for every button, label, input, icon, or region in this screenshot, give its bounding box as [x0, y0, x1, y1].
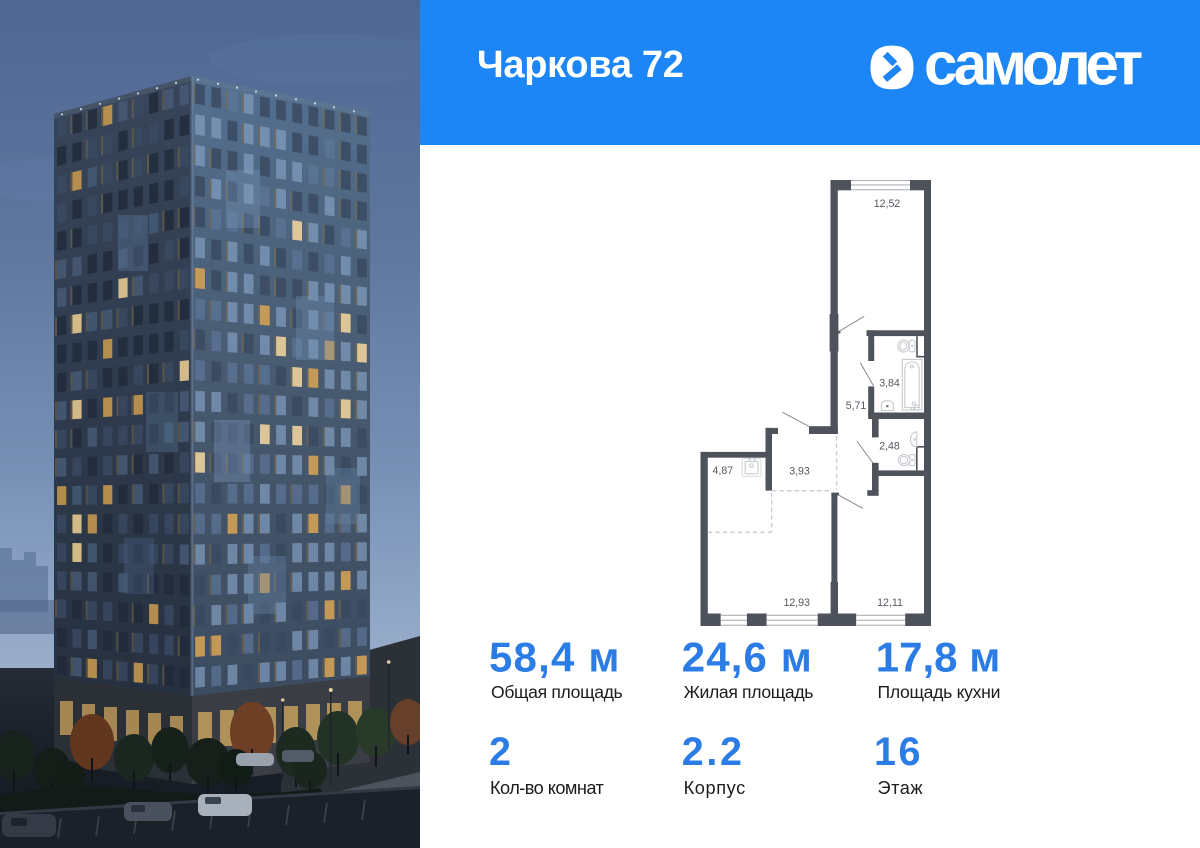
svg-text:58,4 м: 58,4 м — [489, 633, 621, 680]
svg-text:Кол-во комнат: Кол-во комнат — [490, 778, 605, 798]
svg-text:самолет: самолет — [924, 30, 1142, 97]
svg-text:Корпус: Корпус — [684, 778, 746, 798]
svg-text:2: 2 — [489, 730, 511, 774]
svg-text:2.2: 2.2 — [682, 730, 745, 774]
svg-text:5,71: 5,71 — [846, 400, 867, 412]
svg-text:Жилая площадь: Жилая площадь — [684, 682, 814, 702]
svg-text:Площадь кухни: Площадь кухни — [878, 682, 1001, 702]
svg-text:16: 16 — [874, 730, 923, 774]
svg-text:3,93: 3,93 — [789, 466, 810, 478]
svg-text:Общая площадь: Общая площадь — [491, 682, 623, 702]
svg-text:4,87: 4,87 — [712, 465, 733, 477]
svg-text:12,11: 12,11 — [877, 597, 903, 609]
svg-text:12,52: 12,52 — [874, 198, 901, 210]
svg-text:Чаркова 72: Чаркова 72 — [477, 44, 684, 86]
svg-text:3,84: 3,84 — [879, 377, 900, 389]
svg-text:2,48: 2,48 — [879, 441, 900, 453]
svg-text:Этаж: Этаж — [878, 778, 924, 798]
svg-text:24,6 м: 24,6 м — [682, 633, 813, 680]
svg-text:12,93: 12,93 — [783, 597, 810, 609]
svg-text:17,8 м: 17,8 м — [876, 633, 1000, 680]
